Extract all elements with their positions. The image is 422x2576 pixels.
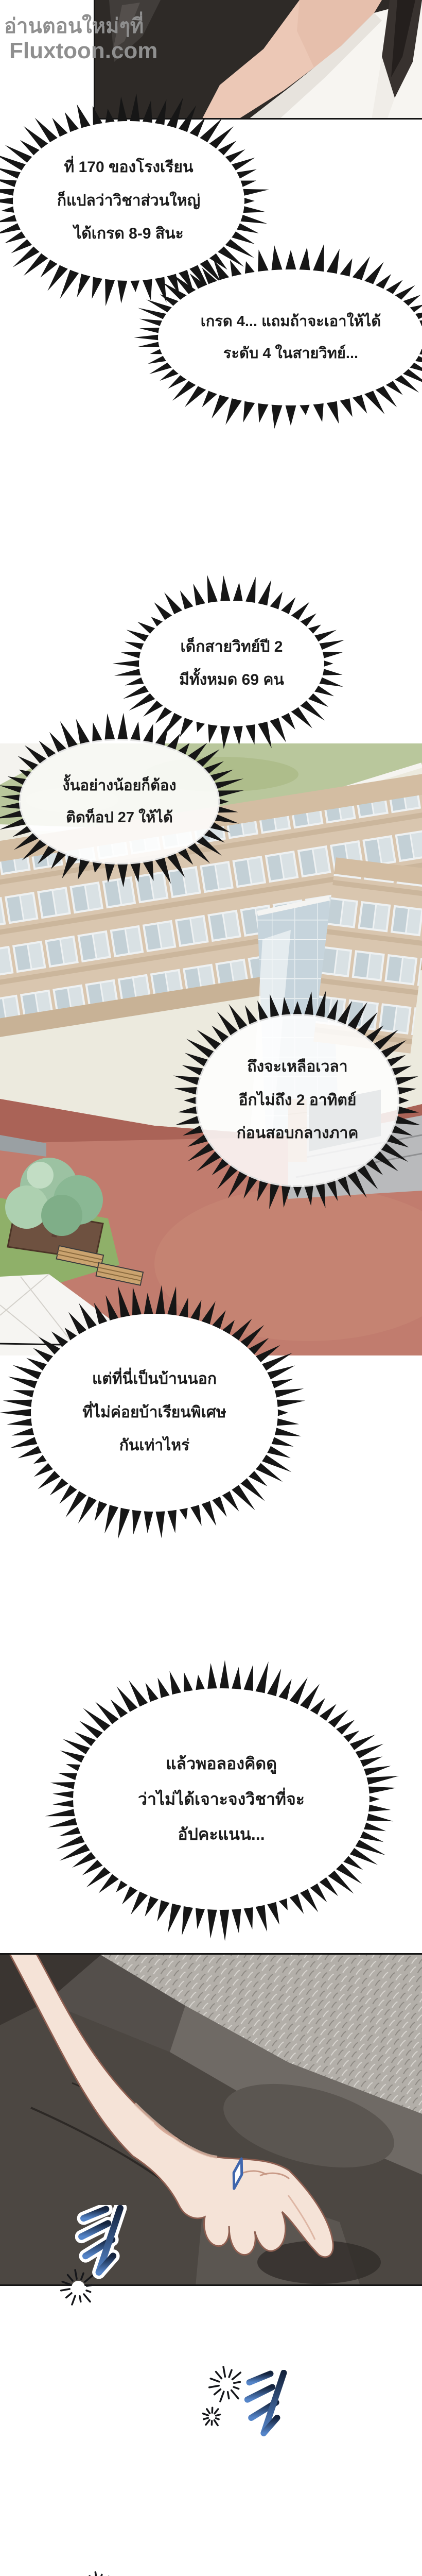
bubble-line: เกรด 4... แถมถ้าจะเอาให้ได้ — [201, 306, 381, 337]
bubble-line: ถึงจะเหลือเวลา — [237, 1050, 359, 1084]
watermark-line-thai: อ่านตอนใหม่ๆที่ — [4, 9, 144, 42]
hand-on-leg-illustration — [0, 1953, 422, 2286]
bubble-line: ว่าไม่ได้เจาะจงวิชาที่จะ — [138, 1782, 305, 1817]
bubble-line: แล้วพอลองคิดดู — [138, 1746, 305, 1782]
bubble-line: อีกไม่ถึง 2 อาทิตย์ — [237, 1084, 359, 1117]
bubble-line: ก็แปลว่าวิชาส่วนใหญ่ — [57, 184, 200, 218]
bubble-line: เด็กสายวิทย์ปี 2 — [179, 631, 284, 664]
webtoon-page: อ่านตอนใหม่ๆที่ Fluxtoon.com ที่ 170 ของ… — [0, 0, 422, 2576]
speech-bubble-grade4: เกรด 4... แถมถ้าจะเอาให้ได้ ระดับ 4 ในสา… — [158, 269, 422, 405]
bubble-line: ติดท็อป 27 ให้ได้ — [62, 802, 176, 834]
bubble-line: ระดับ 4 ในสายวิทย์... — [201, 337, 381, 369]
bubble-line: มีทั้งหมด 69 คน — [179, 664, 284, 697]
bubble-line: อัปคะแนน... — [138, 1817, 305, 1852]
bubble-line: ที่ 170 ของโรงเรียน — [57, 151, 200, 184]
thought-bubble-countryside: แต่ที่นี่เป็นบ้านนอก ที่ไม่ค่อยบ้าเรียนพ… — [31, 1314, 278, 1512]
bubble-line: ก่อนสอบกลางภาค — [237, 1117, 359, 1150]
thought-bubble-no-focus-subject: แล้วพอลองคิดดู ว่าไม่ได้เจาะจงวิชาที่จะ … — [73, 1688, 370, 1910]
panel-hand-on-leg — [0, 1953, 422, 2286]
scribble-flash-icon — [242, 2370, 291, 2451]
thought-bubble-2weeks: ถึงจะเหลือเวลา อีกไม่ถึง 2 อาทิตย์ ก่อนส… — [196, 1014, 399, 1187]
thought-bubble-top27: งั้นอย่างน้อยก็ต้อง ติดท็อป 27 ให้ได้ — [19, 739, 220, 865]
watermark-site-name: Fluxtoon.com — [9, 38, 157, 64]
sparkle-burst-icon — [206, 2364, 247, 2404]
bubble-line: แต่ที่นี่เป็นบ้านนอก — [82, 1363, 226, 1396]
bubble-line: กันเท่าไหร่ — [82, 1429, 226, 1463]
sparkle-burst-icon — [200, 2405, 224, 2429]
bubble-line: งั้นอย่างน้อยก็ต้อง — [62, 770, 176, 802]
bubble-line: ที่ไม่ค่อยบ้าเรียนพิเศษ — [82, 1396, 226, 1430]
sparkle-burst-icon — [58, 2267, 98, 2308]
sparkle-burst-icon — [82, 2570, 114, 2576]
